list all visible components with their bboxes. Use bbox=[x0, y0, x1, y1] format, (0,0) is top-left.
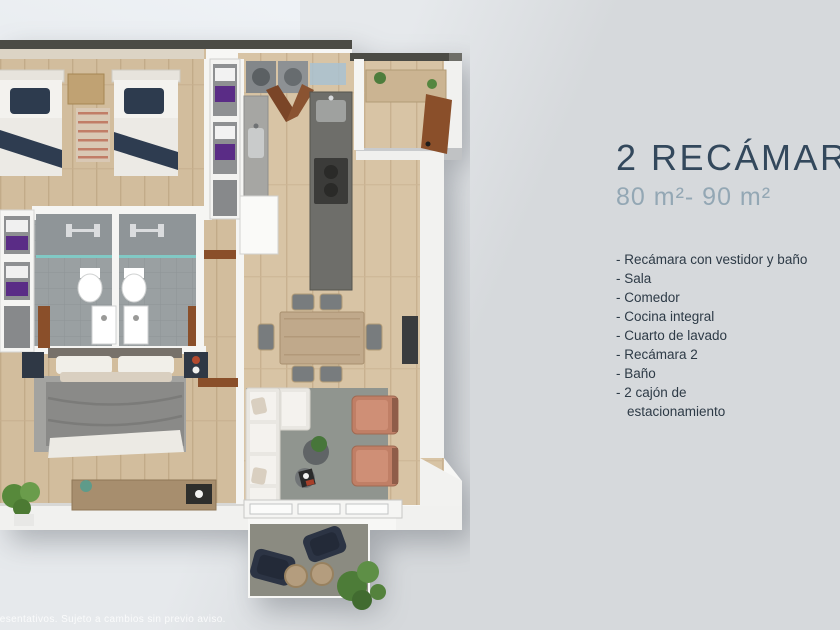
balcony-table-2 bbox=[311, 563, 333, 585]
nightstand bbox=[68, 74, 104, 104]
dining-table bbox=[280, 312, 364, 364]
master-towels-purple-2 bbox=[6, 282, 28, 296]
burner-2 bbox=[324, 183, 338, 197]
bathroom-right-wall bbox=[196, 212, 204, 352]
bed1-pillow bbox=[10, 88, 50, 114]
table-grain bbox=[284, 318, 360, 320]
master-pillow-accent bbox=[60, 372, 172, 382]
vanity-1-faucet bbox=[101, 315, 107, 321]
floor-plant-pot bbox=[14, 514, 34, 526]
vanity-1 bbox=[92, 306, 116, 344]
feature-item: Cuarto de lavado bbox=[616, 326, 840, 345]
kitchen-faucet bbox=[254, 124, 259, 129]
dryer-door bbox=[284, 68, 302, 86]
balcony-plant-leaf-2 bbox=[357, 561, 379, 583]
master-pillow-1 bbox=[56, 356, 112, 374]
laundry-divider-wall bbox=[354, 59, 364, 150]
plan-title: 2 RECÁMAR bbox=[616, 136, 840, 179]
coffee-plant bbox=[311, 436, 327, 452]
entry-plant-1 bbox=[374, 72, 386, 84]
fridge bbox=[240, 196, 278, 254]
master-door bbox=[198, 378, 238, 387]
bedroom2-top-wall-inner bbox=[0, 49, 204, 59]
toilet-2-bowl bbox=[122, 274, 146, 302]
towels-purple-2 bbox=[215, 144, 235, 160]
marketing-slide: 2 RECÁMAR 80 m²- 90 m² Recámara con vest… bbox=[0, 0, 840, 630]
area-range: 80 m²- 90 m² bbox=[616, 183, 840, 212]
bedroom2 bbox=[0, 70, 180, 176]
feature-item: Comedor bbox=[616, 288, 840, 307]
sliding-doors bbox=[244, 500, 402, 518]
nightstand-left bbox=[22, 352, 44, 378]
vanity-2 bbox=[124, 306, 148, 344]
dining-chair-top-1 bbox=[292, 294, 314, 310]
toilet-1-bowl bbox=[78, 274, 102, 302]
kitchen-sink bbox=[248, 128, 264, 158]
glass-pane-3 bbox=[346, 504, 388, 514]
floor-plan-render bbox=[0, 0, 470, 630]
tv-wall bbox=[420, 152, 444, 458]
nightstand-decor-red bbox=[192, 356, 200, 364]
washer-door bbox=[252, 68, 270, 86]
towels-white-1 bbox=[215, 68, 235, 81]
outer-wall-top-right bbox=[350, 53, 462, 61]
balcony-table-1 bbox=[285, 565, 307, 587]
bed2-pillow bbox=[124, 88, 164, 114]
outer-wall-top bbox=[0, 40, 352, 49]
sofa-cushion-2 bbox=[250, 424, 276, 452]
dining-chair-bottom-1 bbox=[292, 366, 314, 382]
closet-cabinet bbox=[213, 180, 237, 216]
disclaimer-text: resentativos. Sujeto a cambios sin previ… bbox=[0, 614, 226, 625]
nightstand-right bbox=[184, 352, 208, 378]
glass-pane-2 bbox=[298, 504, 340, 514]
bathroom-door bbox=[200, 250, 236, 259]
cooktop bbox=[314, 158, 348, 204]
feature-item: 2 cajón de estacionamiento bbox=[616, 383, 840, 421]
island-faucet bbox=[329, 96, 334, 101]
balcony-plant-leaf-4 bbox=[370, 584, 386, 600]
floor-plant-leaf-2 bbox=[20, 482, 40, 502]
sofa-cushion-5 bbox=[282, 392, 306, 426]
sofa-pillow-2 bbox=[251, 467, 268, 485]
feature-list: Recámara con vestidor y baño Sala Comedo… bbox=[616, 250, 840, 421]
burner-1 bbox=[324, 165, 338, 179]
table-grain-2 bbox=[284, 336, 360, 338]
entry-door bbox=[421, 94, 452, 154]
feature-item: Recámara 2 bbox=[616, 345, 840, 364]
bottom-slab-right bbox=[396, 506, 462, 530]
master-closet bbox=[0, 210, 34, 352]
dining-chair-right bbox=[366, 324, 382, 350]
entry-plant-2 bbox=[427, 79, 437, 89]
feature-item: Baño bbox=[616, 364, 840, 383]
bath-door-left bbox=[38, 306, 50, 348]
table-grain-3 bbox=[284, 354, 360, 356]
master-towels-white-1 bbox=[6, 220, 28, 232]
armchair-2-seat bbox=[356, 450, 388, 482]
vanity-2-faucet bbox=[133, 315, 139, 321]
balcony-plant-leaf-3 bbox=[352, 590, 372, 610]
tv-panel bbox=[402, 316, 418, 364]
master-closet-cabinet bbox=[4, 306, 30, 348]
master-towels-white-2 bbox=[6, 266, 28, 278]
closet-vestidor bbox=[210, 59, 240, 219]
island-sink bbox=[316, 100, 346, 122]
living-room bbox=[246, 388, 398, 518]
armchair-1-back bbox=[392, 398, 398, 432]
armchair-2-back bbox=[392, 448, 398, 484]
console-box-decor bbox=[195, 490, 203, 498]
towels-white-2 bbox=[215, 126, 235, 139]
dining-chair-left bbox=[258, 324, 274, 350]
nightstand-decor-white bbox=[193, 367, 200, 374]
dining-chair-bottom-2 bbox=[320, 366, 342, 382]
tray-cup bbox=[303, 473, 309, 479]
armchair-1-seat bbox=[356, 400, 388, 430]
feature-item: Sala bbox=[616, 269, 840, 288]
dining-chair-top-2 bbox=[320, 294, 342, 310]
bedroom2-rug bbox=[76, 108, 110, 162]
feature-item: Recámara con vestidor y baño bbox=[616, 250, 840, 269]
master-towels-purple-1 bbox=[6, 236, 28, 250]
glass-pane-1 bbox=[250, 504, 292, 514]
info-panel: 2 RECÁMAR 80 m²- 90 m² Recámara con vest… bbox=[616, 136, 840, 421]
feature-item: Cocina integral bbox=[616, 307, 840, 326]
console-plant bbox=[80, 480, 92, 492]
towels-purple-1 bbox=[215, 86, 235, 102]
master-pillow-2 bbox=[118, 356, 174, 374]
laundry-window bbox=[310, 63, 346, 85]
entry-door-handle bbox=[426, 142, 431, 147]
